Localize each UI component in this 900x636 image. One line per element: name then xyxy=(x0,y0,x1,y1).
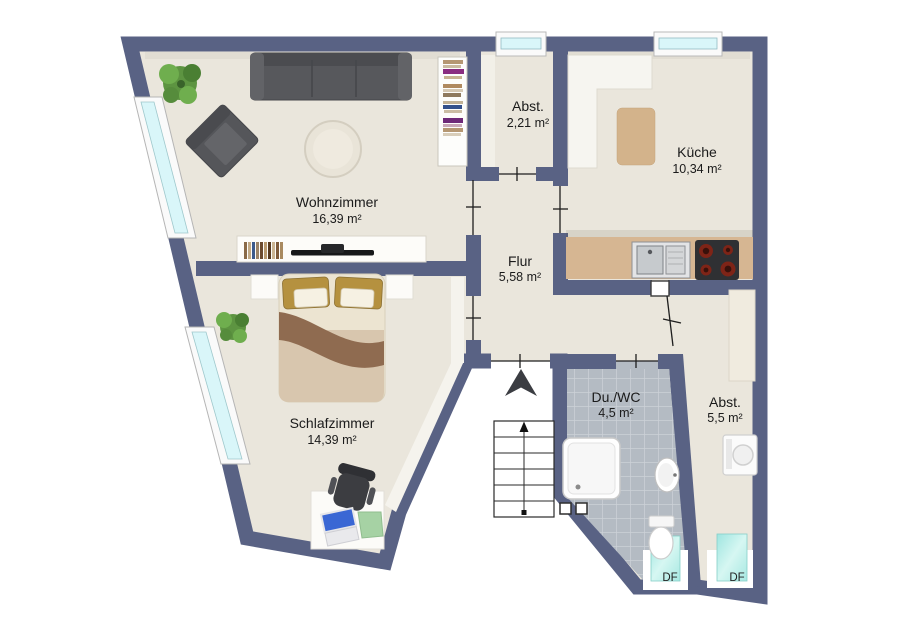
nightstand xyxy=(251,275,278,299)
nightstand xyxy=(386,275,413,299)
wall-bedroom-flur xyxy=(466,340,481,368)
label-du-wc: Du./WC xyxy=(592,389,641,405)
stairs-up-icon xyxy=(494,421,554,517)
knee-wall-strip xyxy=(480,55,495,168)
window-abst-top xyxy=(496,32,546,56)
mouse-pad xyxy=(358,512,383,538)
area-flur: 5,58 m² xyxy=(499,270,541,284)
plant-icon xyxy=(159,64,201,104)
bookshelf xyxy=(438,57,467,166)
shower-tray xyxy=(563,438,620,499)
area-kueche: 10,34 m² xyxy=(672,162,721,176)
wall-marker-icon xyxy=(576,503,587,514)
toilet xyxy=(649,516,674,559)
bed xyxy=(279,274,385,402)
knee-wall-strip xyxy=(451,277,464,363)
sideboard xyxy=(237,236,426,262)
floor-plan-svg: Wohnzimmer 16,39 m² Abst. 2,21 m² Küche … xyxy=(0,0,900,636)
window-kueche xyxy=(654,32,722,56)
area-du-wc: 4,5 m² xyxy=(598,406,633,420)
sink xyxy=(632,242,690,278)
coffee-table xyxy=(305,121,361,177)
door-symbol xyxy=(651,281,669,296)
cooktop xyxy=(695,240,739,280)
kitchen-rug xyxy=(617,108,655,165)
washbasin xyxy=(655,458,679,492)
entrance-opening xyxy=(491,353,550,370)
wall-kueche-bottom-left xyxy=(553,280,652,295)
area-wohnzimmer: 16,39 m² xyxy=(312,212,361,226)
washing-machine xyxy=(723,435,757,475)
area-schlafzimmer: 14,39 m² xyxy=(307,433,356,447)
label-flur: Flur xyxy=(508,253,532,269)
wall-duwc-top-left xyxy=(553,354,616,369)
wall-abst-kueche xyxy=(553,44,568,186)
wall-abst-bottom-right xyxy=(536,167,568,181)
label-wohnzimmer: Wohnzimmer xyxy=(296,194,379,210)
wall-living-flur-top xyxy=(466,44,481,180)
wall-flur-kueche xyxy=(553,233,568,287)
label-kueche: Küche xyxy=(677,144,717,160)
label-roof-window-2: DF xyxy=(729,572,744,584)
area-abst-unten: 5,5 m² xyxy=(707,411,742,425)
label-abst-unten: Abst. xyxy=(709,394,741,410)
wall-marker-icon xyxy=(560,503,571,514)
wall-abst-bottom-left xyxy=(466,167,499,181)
label-schlafzimmer: Schlafzimmer xyxy=(290,415,375,431)
label-abst-oben: Abst. xyxy=(512,98,544,114)
storage-cabinet xyxy=(729,290,755,381)
floor-plan-canvas: Wohnzimmer 16,39 m² Abst. 2,21 m² Küche … xyxy=(0,0,900,636)
sofa xyxy=(250,53,412,100)
area-abst-oben: 2,21 m² xyxy=(507,116,549,130)
counter-shadow xyxy=(566,230,753,238)
duwc-door-opening xyxy=(616,353,658,369)
label-roof-window-1: DF xyxy=(662,572,677,584)
laptop xyxy=(321,508,359,546)
